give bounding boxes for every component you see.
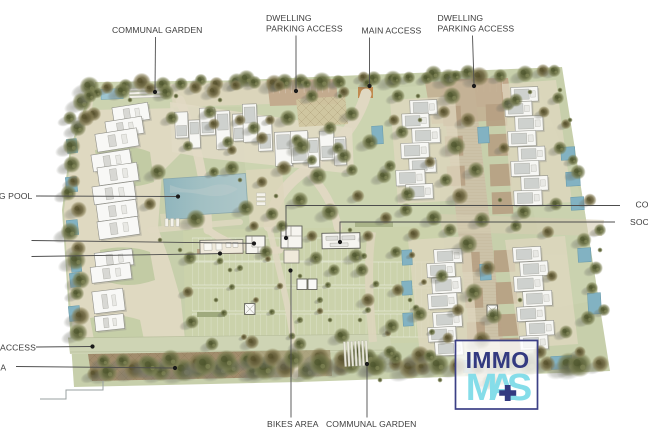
svg-text:COMMUNAL GARDEN: COMMUNAL GARDEN xyxy=(326,419,416,429)
svg-text:MAS: MAS xyxy=(466,367,531,409)
svg-text:MAIN ACCESS: MAIN ACCESS xyxy=(362,26,422,36)
svg-text:SOCIAL CLUB: SOCIAL CLUB xyxy=(630,217,648,227)
svg-text:PARKING ACCESS: PARKING ACCESS xyxy=(438,24,515,34)
svg-text:DWELLING: DWELLING xyxy=(266,13,312,23)
svg-text:PARKING ACCESS: PARKING ACCESS xyxy=(266,24,343,34)
svg-text:VEHICLE ACCESS: VEHICLE ACCESS xyxy=(0,343,36,353)
svg-text:GREEN AREA: GREEN AREA xyxy=(0,363,6,373)
svg-text:COWORKING: COWORKING xyxy=(636,200,648,210)
svg-text:DWELLING: DWELLING xyxy=(438,13,484,23)
svg-text:SWIMMING POOL: SWIMMING POOL xyxy=(0,191,33,201)
svg-text:COMMUNAL GARDEN: COMMUNAL GARDEN xyxy=(112,25,202,35)
svg-text:BIKES AREA: BIKES AREA xyxy=(267,419,319,429)
